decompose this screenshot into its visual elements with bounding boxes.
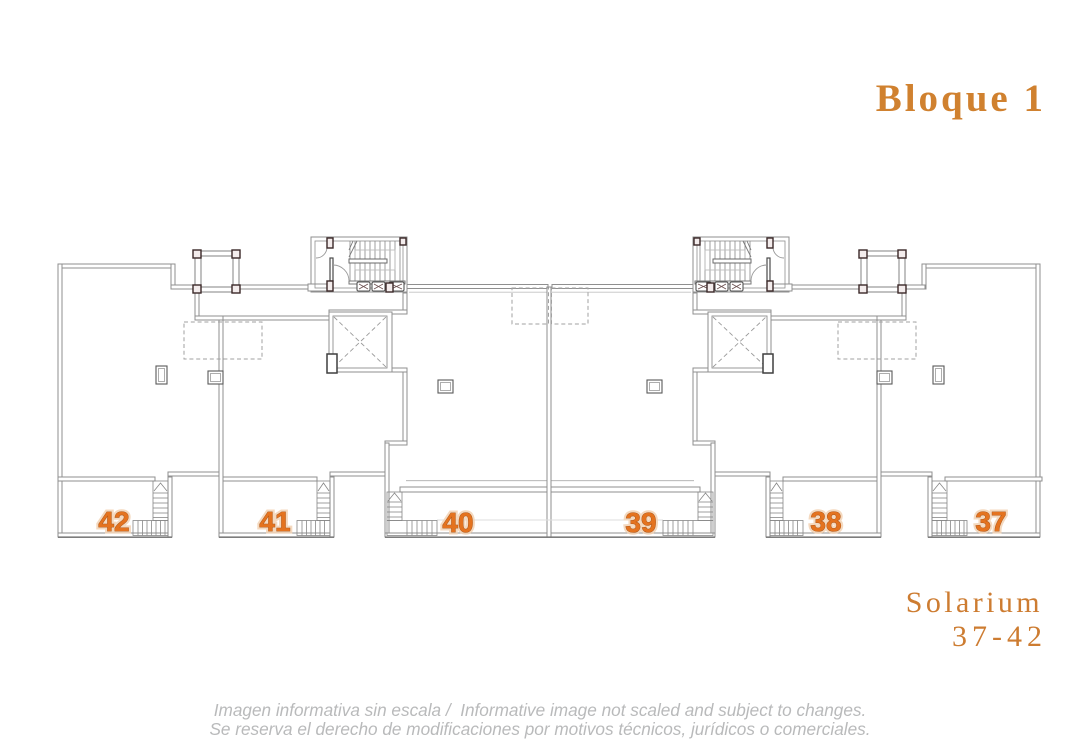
svg-text:Solarium: Solarium — [906, 586, 1043, 619]
svg-text:37: 37 — [975, 506, 1006, 537]
svg-text:Bloque 1: Bloque 1 — [876, 77, 1046, 120]
svg-text:40: 40 — [442, 507, 473, 538]
svg-text:37-42: 37-42 — [952, 620, 1047, 653]
svg-text:41: 41 — [259, 506, 290, 537]
svg-text:38: 38 — [810, 506, 841, 537]
svg-text:Se reserva el derecho de modif: Se reserva el derecho de modificaciones … — [209, 719, 870, 739]
svg-text:39: 39 — [625, 507, 656, 538]
svg-text:Imagen informativa sin escala: Imagen informativa sin escala / Informat… — [214, 700, 867, 720]
svg-text:42: 42 — [98, 506, 129, 537]
